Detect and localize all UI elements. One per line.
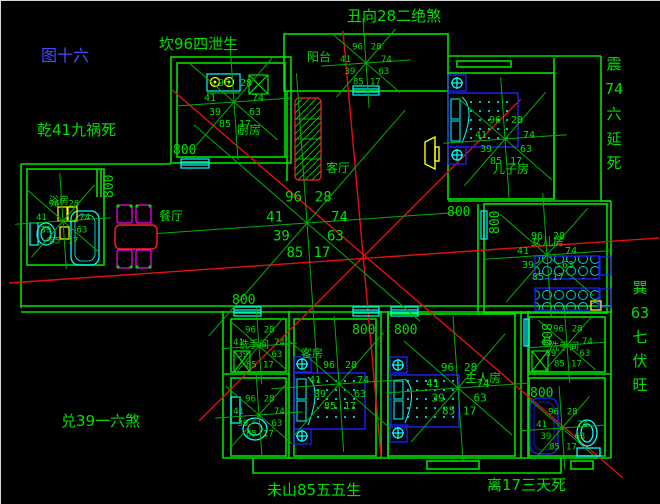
annotation-kan: 坎96四泄生 (159, 35, 238, 53)
annotation-dui: 兑39一六煞 (61, 412, 140, 430)
compass-number: 17 (552, 272, 564, 283)
compass-star: 9628417439638517 (443, 77, 567, 201)
svg-text:七: 七 (632, 328, 647, 346)
room-label-guest: 客房 (301, 346, 323, 360)
dimension-label: 800 (530, 386, 553, 401)
compass-number: 63 (562, 260, 574, 271)
compass-number: 28 (315, 189, 332, 205)
compass-number: 28 (264, 325, 275, 335)
compass-number: 74 (252, 93, 264, 104)
compass-number: 96 (285, 189, 302, 205)
compass-number: 74 (381, 55, 392, 65)
annotation-qian: 乾41九祸死 (37, 121, 116, 139)
compass-number: 41 (204, 93, 216, 104)
compass-number: 17 (566, 442, 577, 452)
dimension-label: 800 (538, 323, 553, 346)
compass-number: 74 (577, 420, 588, 430)
compass-number: 17 (463, 404, 476, 417)
compass-number: 17 (344, 401, 356, 412)
compass-number: 41 (309, 375, 321, 386)
dimension-label: 800 (232, 293, 255, 308)
bed-master (391, 375, 459, 427)
compass-number: 85 (246, 429, 257, 439)
compass-number: 17 (263, 360, 274, 370)
floorplan-drawing: 图十六 坎96四泄生 丑向28二绝煞 乾41九祸死 兑39一六煞 未山85五五生… (1, 1, 660, 504)
room-label-balcony: 阳台 (307, 49, 331, 64)
compass-number: 85 (554, 359, 565, 369)
compass-number: 74 (582, 337, 593, 347)
svg-text:巽: 巽 (632, 279, 647, 297)
compass-number: 28 (464, 361, 477, 374)
compass-number: 63 (327, 229, 344, 245)
compass-number: 63 (354, 389, 366, 400)
dimension-label: 800 (447, 205, 470, 220)
dimension-label: 800 (102, 175, 117, 198)
room-label-dining: 餐厅 (159, 208, 183, 223)
compass-number: 41 (536, 420, 547, 430)
svg-text:63: 63 (631, 304, 649, 322)
compass-number: 39 (314, 389, 326, 400)
compass-number: 39 (209, 107, 221, 118)
cad-floorplan-canvas: 图十六 坎96四泄生 丑向28二绝煞 乾41九祸死 兑39一六煞 未山85五五生… (0, 0, 660, 504)
compass-number: 28 (553, 231, 565, 242)
compass-number: 39 (545, 349, 556, 359)
compass-number: 28 (68, 200, 79, 210)
compass-number: 63 (271, 350, 282, 360)
compass-number: 96 (245, 325, 256, 335)
compass-number: 63 (271, 419, 282, 429)
compass-number: 41 (266, 210, 283, 226)
compass-number: 74 (331, 210, 348, 226)
compass-number: 28 (371, 42, 382, 52)
compass-number: 41 (475, 130, 487, 141)
compass-number: 96 (49, 200, 60, 210)
compass-number: 74 (79, 213, 90, 223)
compass-number: 39 (40, 226, 51, 236)
compass-number: 96 (323, 360, 335, 371)
compass-number: 17 (263, 429, 274, 439)
compass-number: 28 (572, 324, 583, 334)
svg-text:六: 六 (606, 105, 621, 123)
compass-number: 41 (426, 377, 439, 390)
svg-text:死: 死 (606, 154, 621, 172)
dimension-label: 800 (394, 323, 417, 338)
compass-number: 85 (353, 77, 364, 87)
svg-text:旺: 旺 (632, 376, 647, 394)
compass-number: 74 (477, 377, 491, 390)
compass-number: 17 (67, 237, 78, 247)
compass-number: 85 (246, 360, 257, 370)
compass-number: 74 (357, 375, 369, 386)
compass-number: 85 (532, 272, 544, 283)
annotation-li: 离17三天死 (487, 476, 566, 494)
dimension-label: 800 (488, 211, 503, 234)
compass-number: 85 (549, 442, 560, 452)
compass-number: 85 (442, 404, 455, 417)
compass-number: 96 (218, 78, 230, 89)
compass-number: 85 (324, 401, 336, 412)
compass-number: 74 (565, 246, 577, 257)
compass-number: 17 (571, 359, 582, 369)
compass-number: 28 (240, 78, 252, 89)
compass-number: 63 (76, 226, 87, 236)
compass-number: 39 (344, 67, 355, 77)
compass-number: 74 (274, 338, 285, 348)
compass-number: 85 (286, 245, 303, 261)
compass-number: 28 (345, 360, 357, 371)
dimension-label: 800 (352, 323, 375, 338)
window-daughter (481, 211, 487, 239)
compass-number: 74 (274, 407, 285, 417)
compass-number: 96 (489, 115, 501, 126)
svg-text:伏: 伏 (632, 352, 647, 370)
compass-number: 39 (522, 260, 534, 271)
compass-number: 17 (510, 156, 522, 167)
compass-number: 85 (490, 156, 502, 167)
compass-number: 41 (517, 246, 529, 257)
compass-number: 96 (441, 361, 454, 374)
svg-text:74: 74 (605, 80, 623, 98)
compass-number: 74 (523, 130, 535, 141)
room-label-living: 客厅 (326, 160, 350, 175)
dimension-label: 800 (173, 143, 196, 158)
compass-number: 39 (480, 144, 492, 155)
compass-number: 28 (511, 115, 523, 126)
compass-number: 17 (239, 119, 251, 130)
svg-text:延: 延 (606, 130, 621, 148)
compass-number: 63 (520, 144, 532, 155)
compass-number: 39 (431, 392, 444, 405)
compass-number: 63 (249, 107, 261, 118)
annotation-chou: 丑向28二绝煞 (347, 7, 441, 25)
compass-number: 63 (574, 432, 585, 442)
compass-number: 39 (237, 350, 248, 360)
compass-number: 39 (273, 229, 290, 245)
svg-text:震: 震 (606, 55, 621, 73)
compass-number: 96 (352, 42, 363, 52)
compass-number: 63 (378, 67, 389, 77)
compass-number: 96 (245, 394, 256, 404)
compass-number: 17 (370, 77, 381, 87)
compass-number: 85 (219, 119, 231, 130)
compass-number: 96 (531, 231, 543, 242)
compass-number: 63 (473, 392, 486, 405)
door-icon (425, 137, 439, 169)
compass-number: 41 (36, 213, 47, 223)
dining-table (115, 225, 157, 249)
annotation-weishan: 未山85五五生 (267, 481, 361, 499)
compass-number: 39 (540, 432, 551, 442)
compass-number: 63 (579, 349, 590, 359)
compass-number: 41 (340, 55, 351, 65)
annotation-zhen-vertical: 震 74 六 延 死 (605, 55, 623, 172)
dining-chairs (117, 205, 151, 268)
compass-number: 28 (264, 394, 275, 404)
annotation-xun-vertical: 巽 63 七 伏 旺 (631, 279, 649, 394)
figure-title: 图十六 (41, 46, 89, 65)
compass-number: 17 (313, 245, 330, 261)
compass-number: 28 (567, 407, 578, 417)
compass-number: 85 (49, 237, 60, 247)
compass-number: 41 (233, 407, 244, 417)
compass-star: 9628417439638517 (271, 316, 407, 452)
compass-number: 41 (233, 338, 244, 348)
compass-number: 39 (237, 419, 248, 429)
compass-number: 96 (553, 324, 564, 334)
compass-number: 96 (548, 407, 559, 417)
